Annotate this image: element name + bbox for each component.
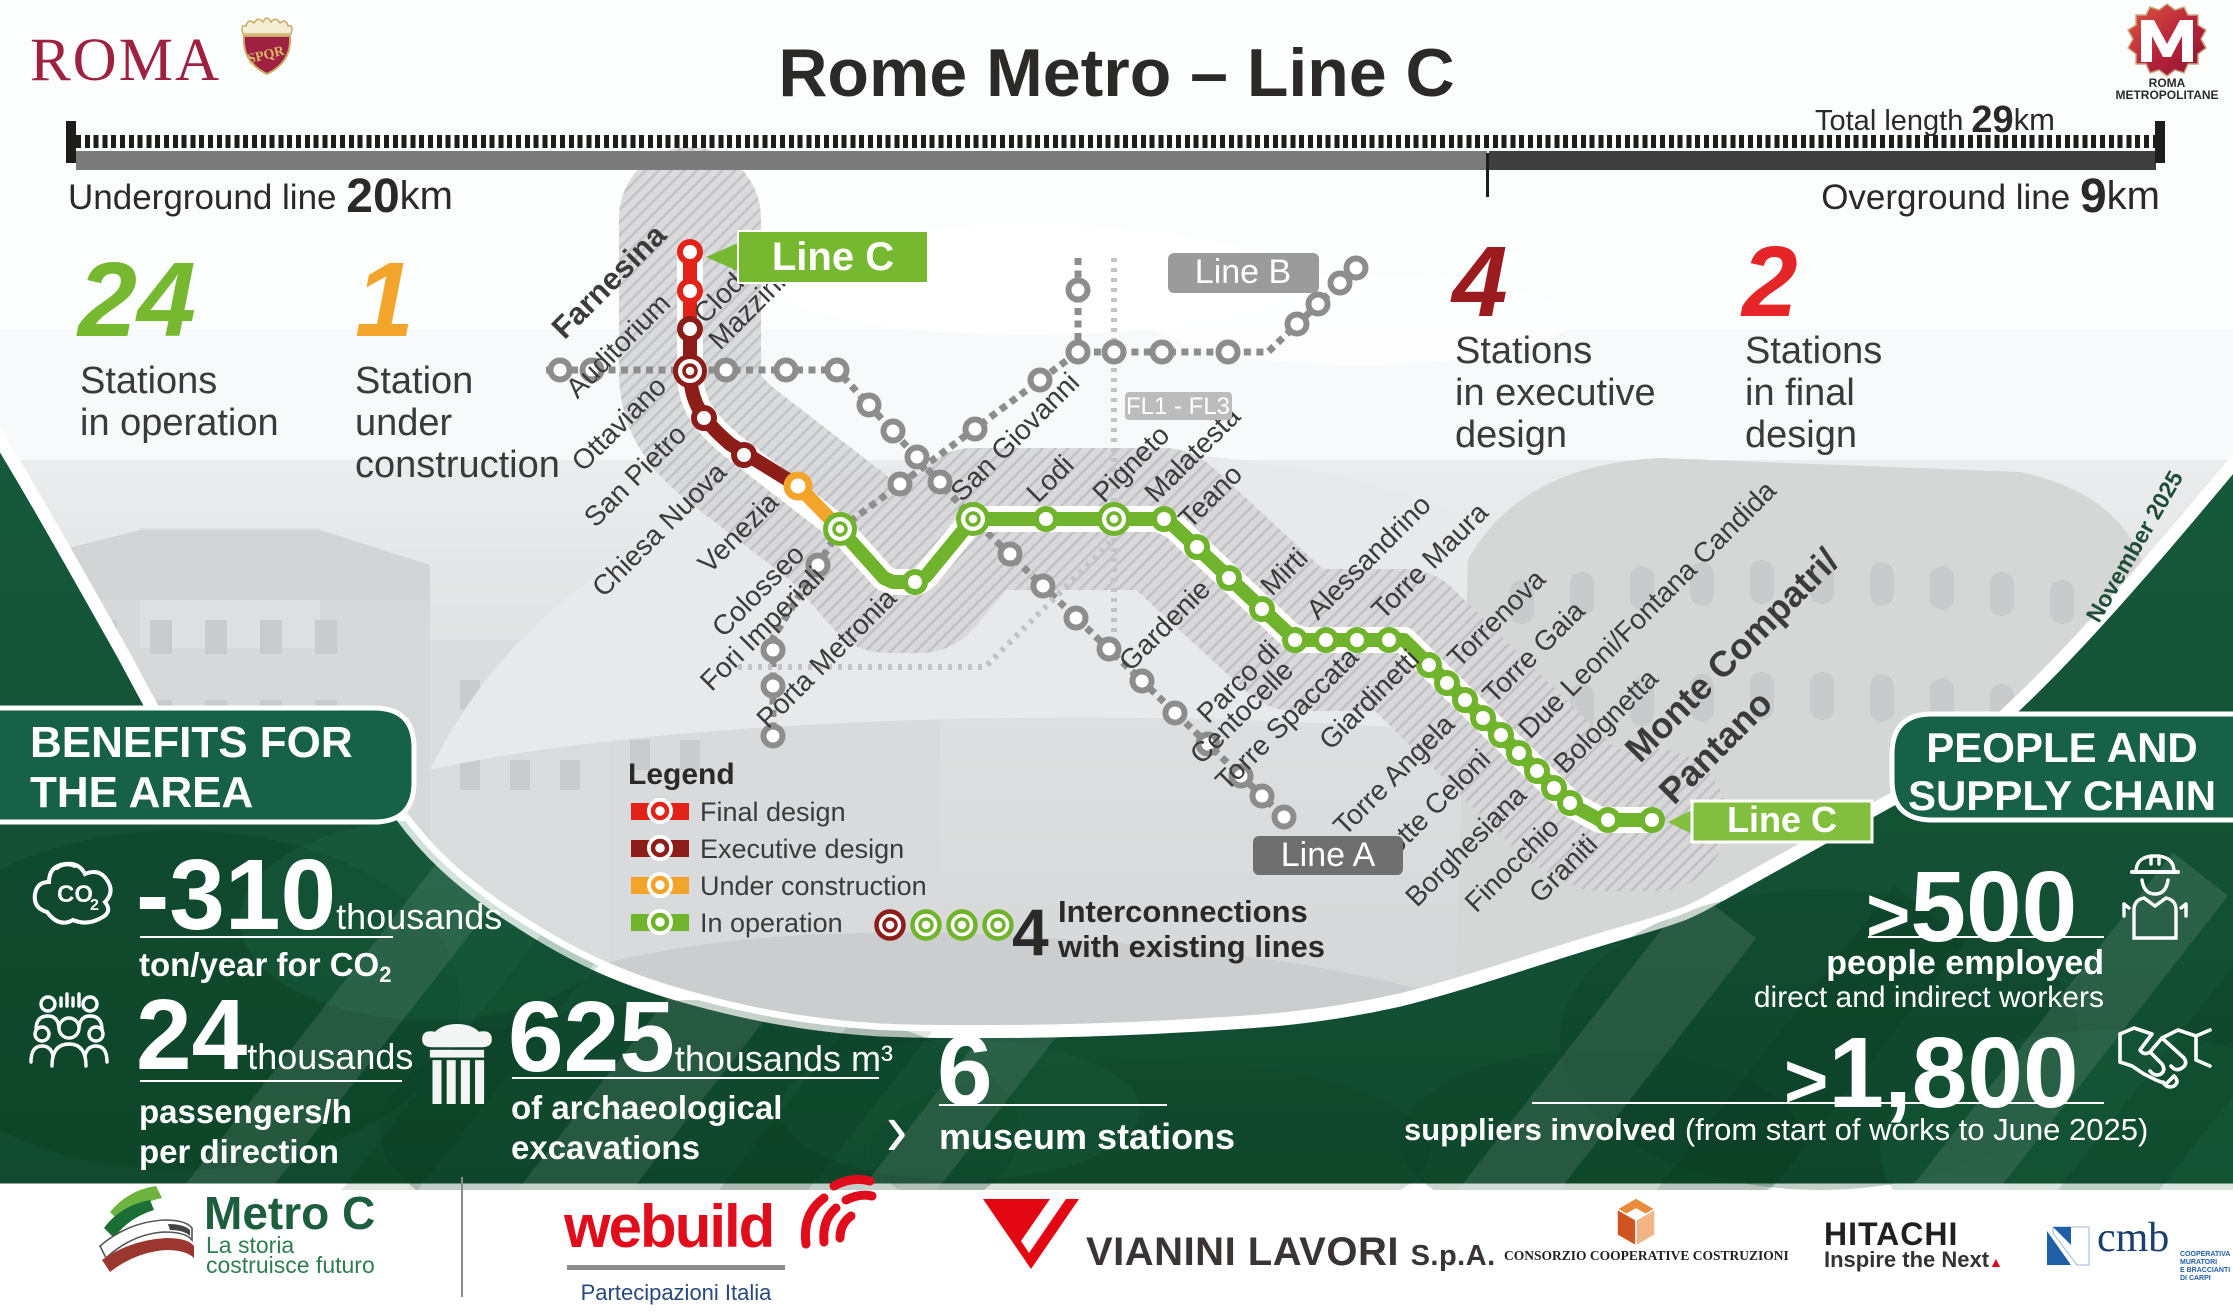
svg-text:CO: CO [57, 881, 93, 908]
svg-text:METROPOLITANE: METROPOLITANE [2115, 88, 2218, 102]
svg-text:2: 2 [90, 897, 99, 914]
